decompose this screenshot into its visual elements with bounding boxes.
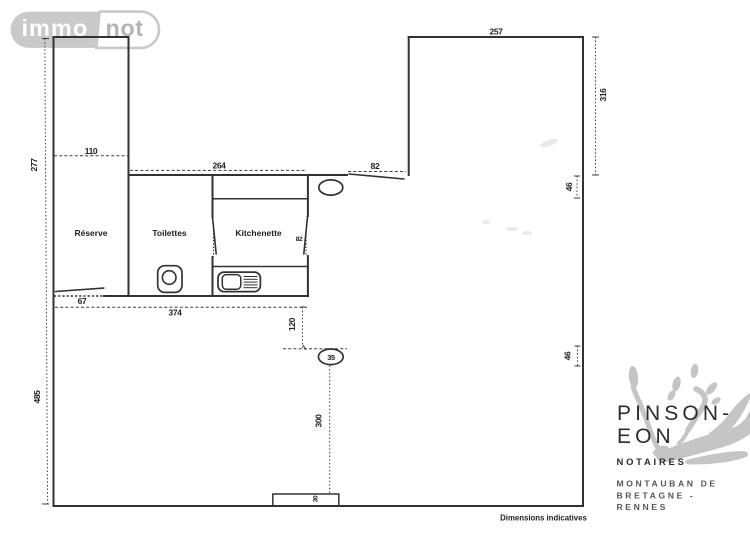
- svg-text:Réserve: Réserve: [74, 228, 107, 238]
- svg-text:NOTAIRES: NOTAIRES: [617, 456, 687, 467]
- svg-text:82: 82: [296, 236, 303, 243]
- svg-text:35: 35: [327, 353, 335, 362]
- svg-text:46: 46: [564, 182, 574, 191]
- svg-text:82: 82: [371, 161, 380, 171]
- svg-text:BRETAGNE -: BRETAGNE -: [617, 490, 696, 500]
- svg-text:316: 316: [598, 88, 608, 102]
- svg-text:67: 67: [78, 296, 87, 306]
- svg-text:MONTAUBAN DE: MONTAUBAN DE: [617, 479, 718, 489]
- svg-text:257: 257: [490, 27, 504, 37]
- svg-text:46: 46: [563, 351, 573, 360]
- svg-text:RENNES: RENNES: [617, 502, 668, 512]
- svg-text:264: 264: [213, 161, 227, 171]
- svg-text:30: 30: [313, 495, 320, 502]
- svg-text:Kitchenette: Kitchenette: [235, 228, 282, 238]
- svg-text:Toilettes: Toilettes: [152, 228, 187, 238]
- svg-text:300: 300: [314, 414, 324, 428]
- svg-text:110: 110: [85, 146, 98, 156]
- svg-text:120: 120: [287, 317, 297, 331]
- svg-text:277: 277: [29, 158, 39, 172]
- svg-text:EON: EON: [617, 425, 675, 448]
- svg-text:485: 485: [32, 390, 42, 404]
- svg-text:Dimensions indicatives: Dimensions indicatives: [500, 514, 587, 523]
- svg-text:PINSON-: PINSON-: [617, 402, 733, 425]
- svg-text:374: 374: [169, 308, 183, 318]
